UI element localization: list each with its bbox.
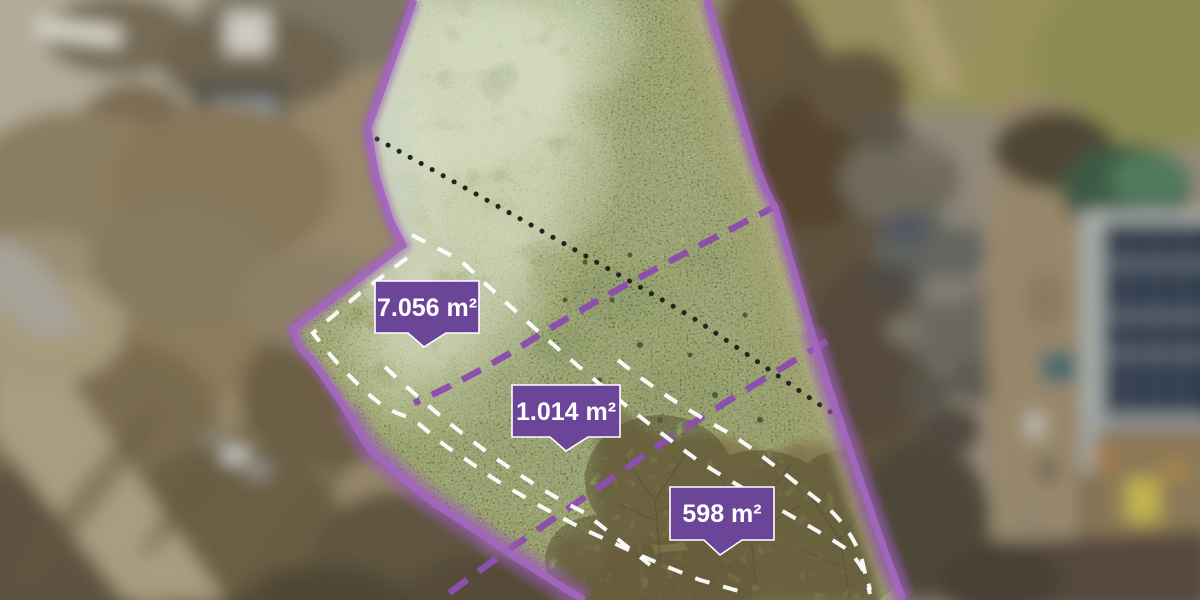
svg-text:7.056 m²: 7.056 m² [377,294,477,322]
svg-text:1.014 m²: 1.014 m² [516,398,616,426]
svg-text:598 m²: 598 m² [682,500,761,528]
